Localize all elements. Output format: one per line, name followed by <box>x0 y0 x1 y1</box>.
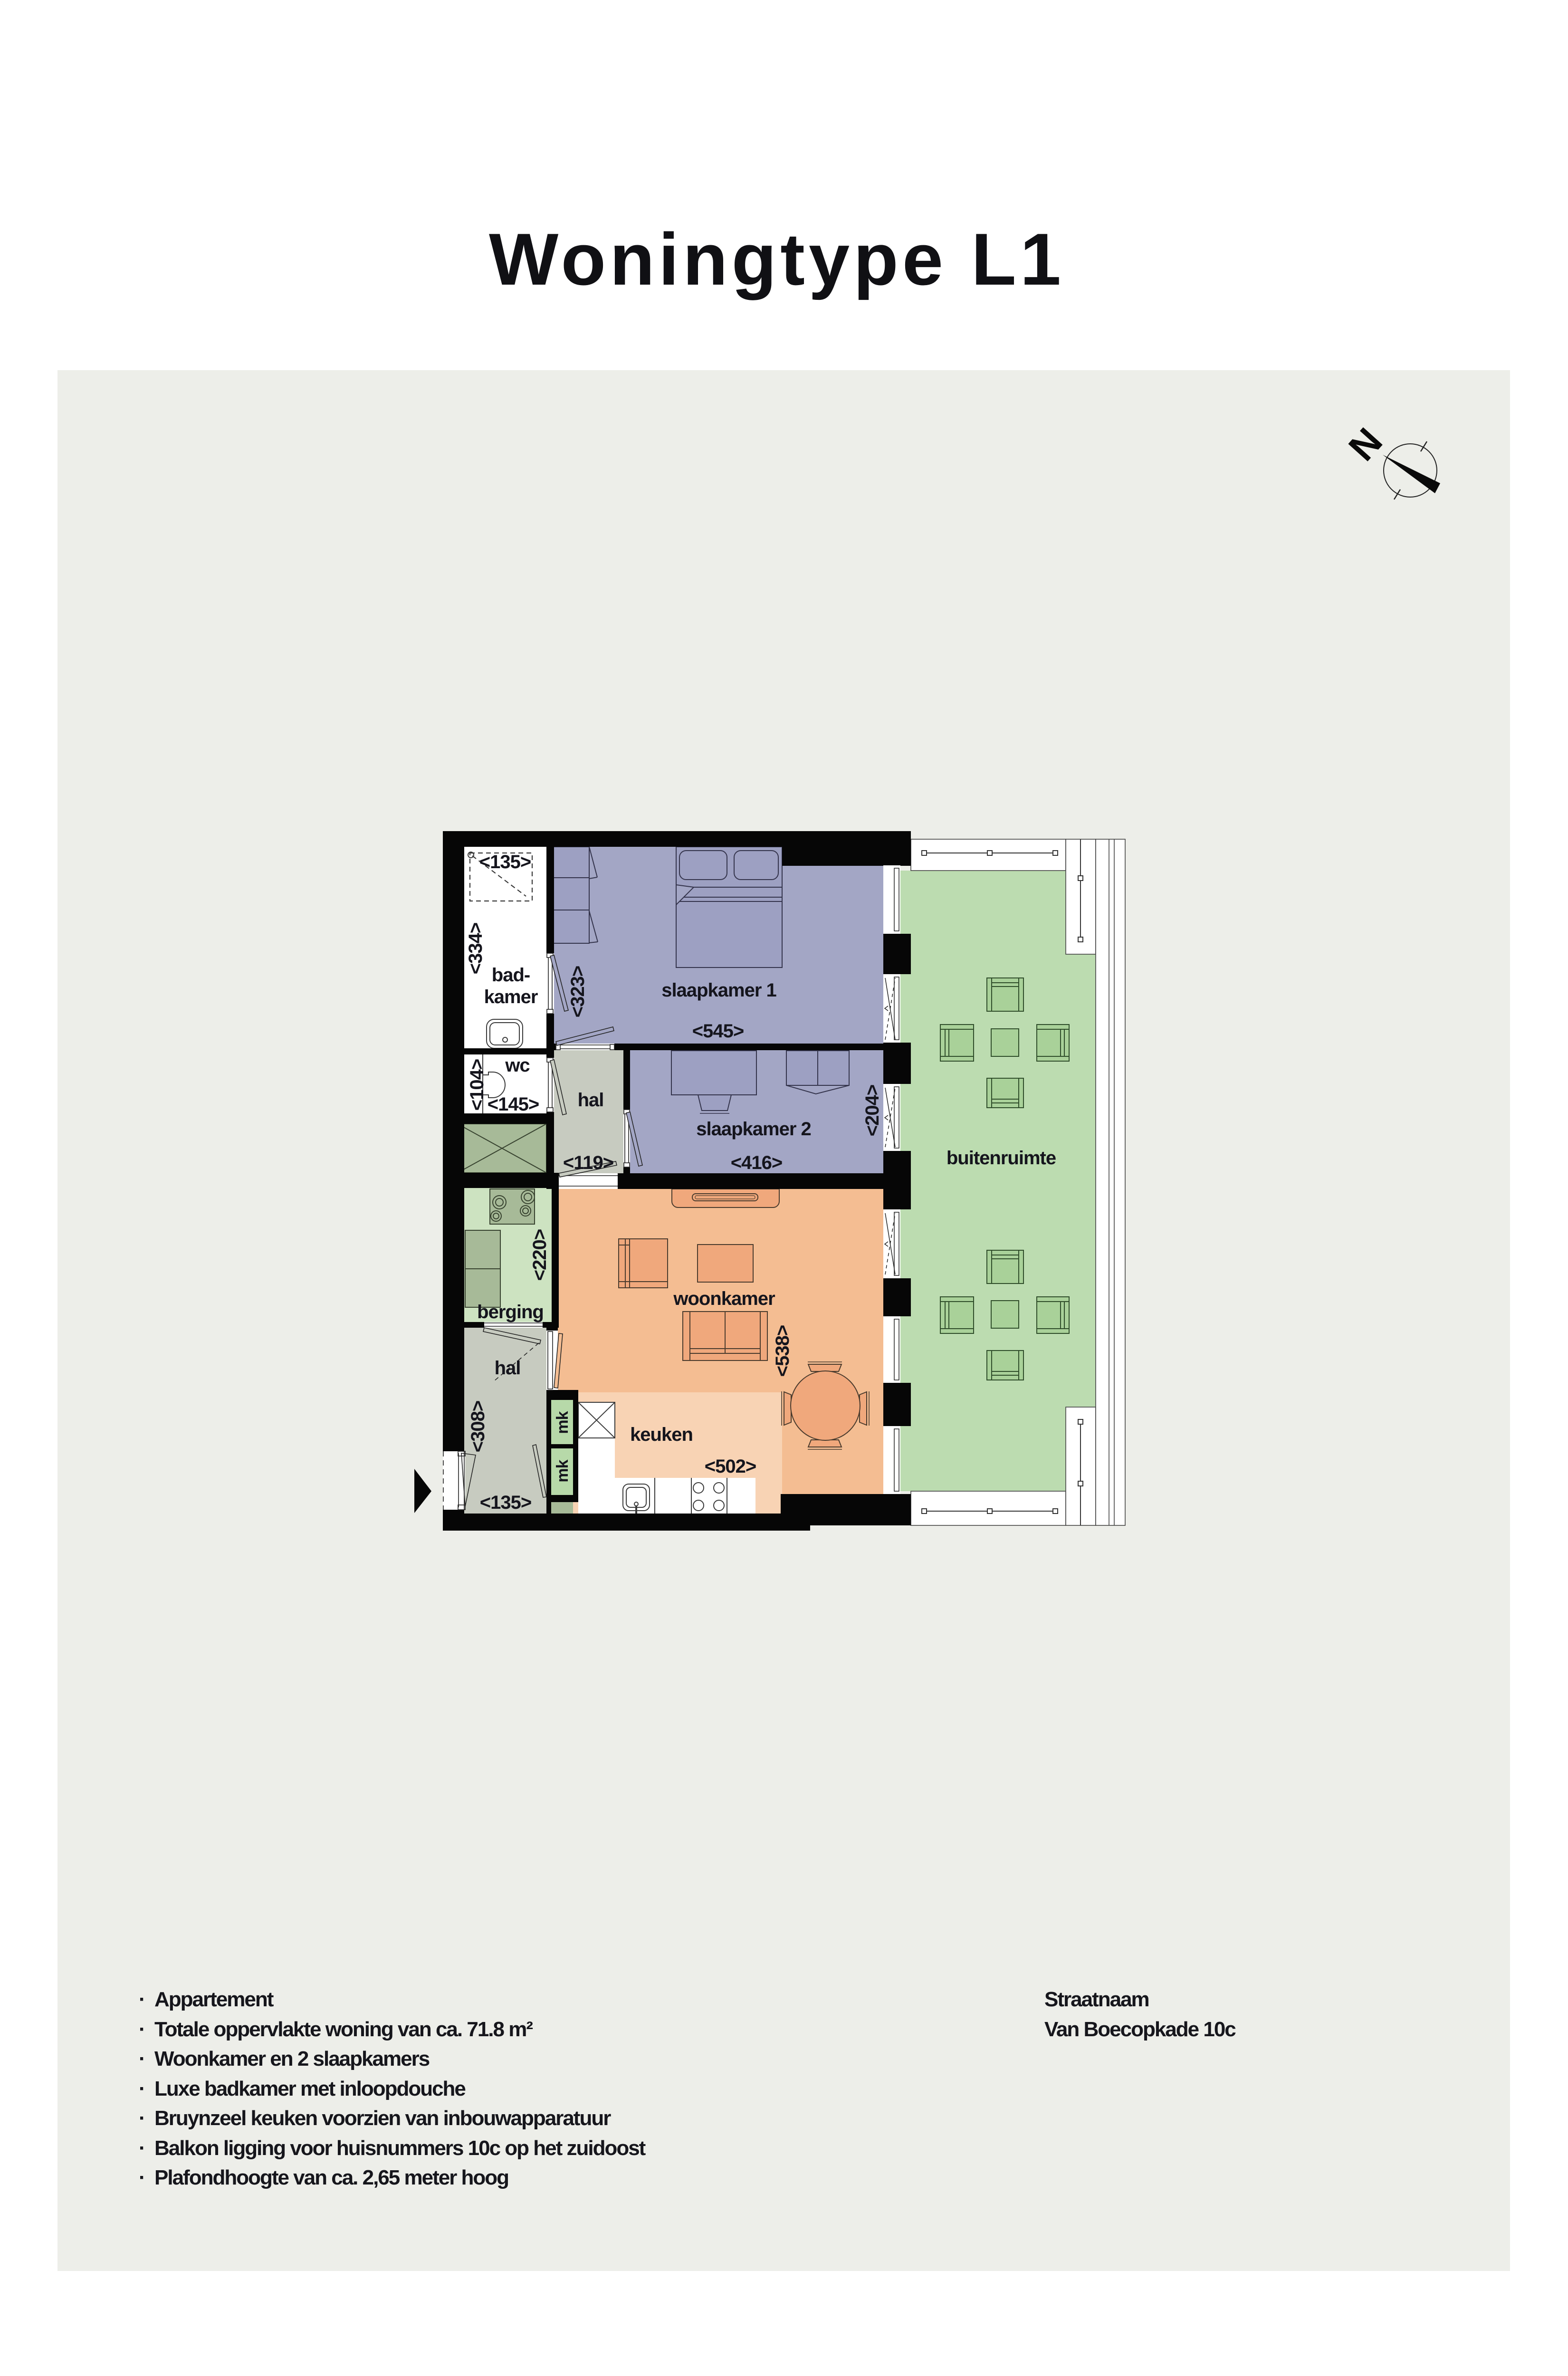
svg-text:<135>: <135> <box>479 852 531 872</box>
svg-text:slaapkamer 2: slaapkamer 2 <box>696 1119 811 1140</box>
svg-text:<145>: <145> <box>488 1094 539 1115</box>
svg-text:bad-: bad- <box>492 965 530 986</box>
svg-text:keuken: keuken <box>630 1424 693 1445</box>
svg-text:mk: mk <box>554 1411 572 1434</box>
svg-text:kamer: kamer <box>484 987 538 1007</box>
svg-text:<220>: <220> <box>529 1229 550 1281</box>
svg-text:<308>: <308> <box>468 1401 488 1452</box>
svg-text:<538>: <538> <box>772 1325 793 1377</box>
svg-text:<334>: <334> <box>465 923 486 974</box>
svg-text:<545>: <545> <box>692 1021 744 1042</box>
svg-text:<416>: <416> <box>731 1152 782 1173</box>
svg-text:wc: wc <box>505 1055 530 1076</box>
svg-text:hal: hal <box>495 1358 521 1379</box>
svg-text:hal: hal <box>578 1090 604 1111</box>
svg-text:<119>: <119> <box>563 1152 613 1173</box>
svg-text:<502>: <502> <box>705 1456 756 1477</box>
svg-text:woonkamer: woonkamer <box>673 1288 775 1309</box>
svg-text:buitenruimte: buitenruimte <box>947 1148 1056 1169</box>
svg-text:<104>: <104> <box>467 1059 488 1111</box>
svg-text:N: N <box>1340 420 1390 469</box>
svg-text:mk: mk <box>554 1459 572 1482</box>
svg-text:<323>: <323> <box>567 966 588 1017</box>
svg-text:slaapkamer 1: slaapkamer 1 <box>661 980 776 1001</box>
svg-text:berging: berging <box>477 1302 544 1322</box>
svg-text:<204>: <204> <box>862 1085 883 1136</box>
svg-text:<135>: <135> <box>480 1492 531 1513</box>
